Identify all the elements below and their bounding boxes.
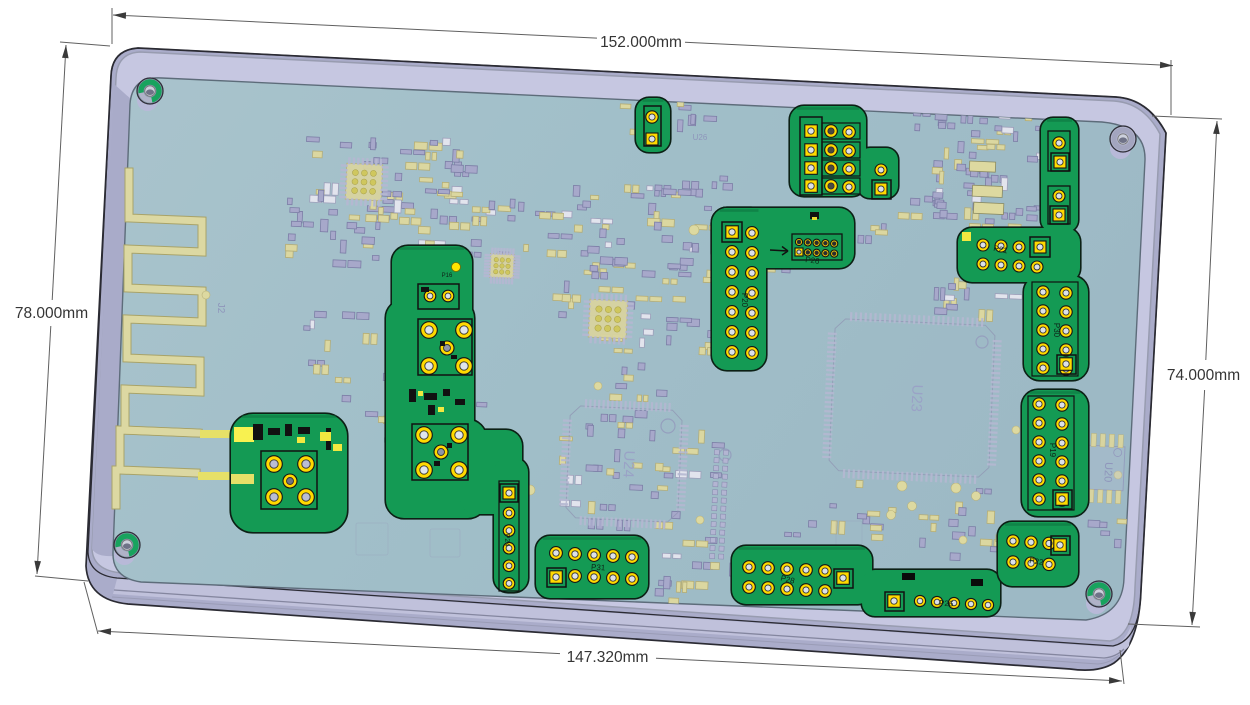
svg-text:U26: U26 bbox=[693, 133, 708, 142]
svg-text:74.000mm: 74.000mm bbox=[1167, 367, 1240, 384]
svg-text:P16: P16 bbox=[442, 273, 453, 279]
svg-text:P19: P19 bbox=[1048, 443, 1057, 458]
svg-text:78.000mm: 78.000mm bbox=[15, 305, 88, 322]
svg-text:P26: P26 bbox=[939, 599, 954, 609]
svg-text:147.320mm: 147.320mm bbox=[567, 649, 649, 666]
svg-text:U24: U24 bbox=[619, 450, 637, 478]
svg-text:U20: U20 bbox=[1101, 462, 1114, 483]
svg-text:U23: U23 bbox=[907, 384, 925, 412]
svg-text:P30: P30 bbox=[1052, 323, 1061, 338]
svg-text:152.000mm: 152.000mm bbox=[600, 34, 682, 51]
svg-text:P24: P24 bbox=[503, 534, 510, 547]
svg-text:P20: P20 bbox=[740, 293, 749, 308]
svg-text:J2: J2 bbox=[215, 303, 226, 314]
svg-text:P31: P31 bbox=[591, 563, 606, 573]
